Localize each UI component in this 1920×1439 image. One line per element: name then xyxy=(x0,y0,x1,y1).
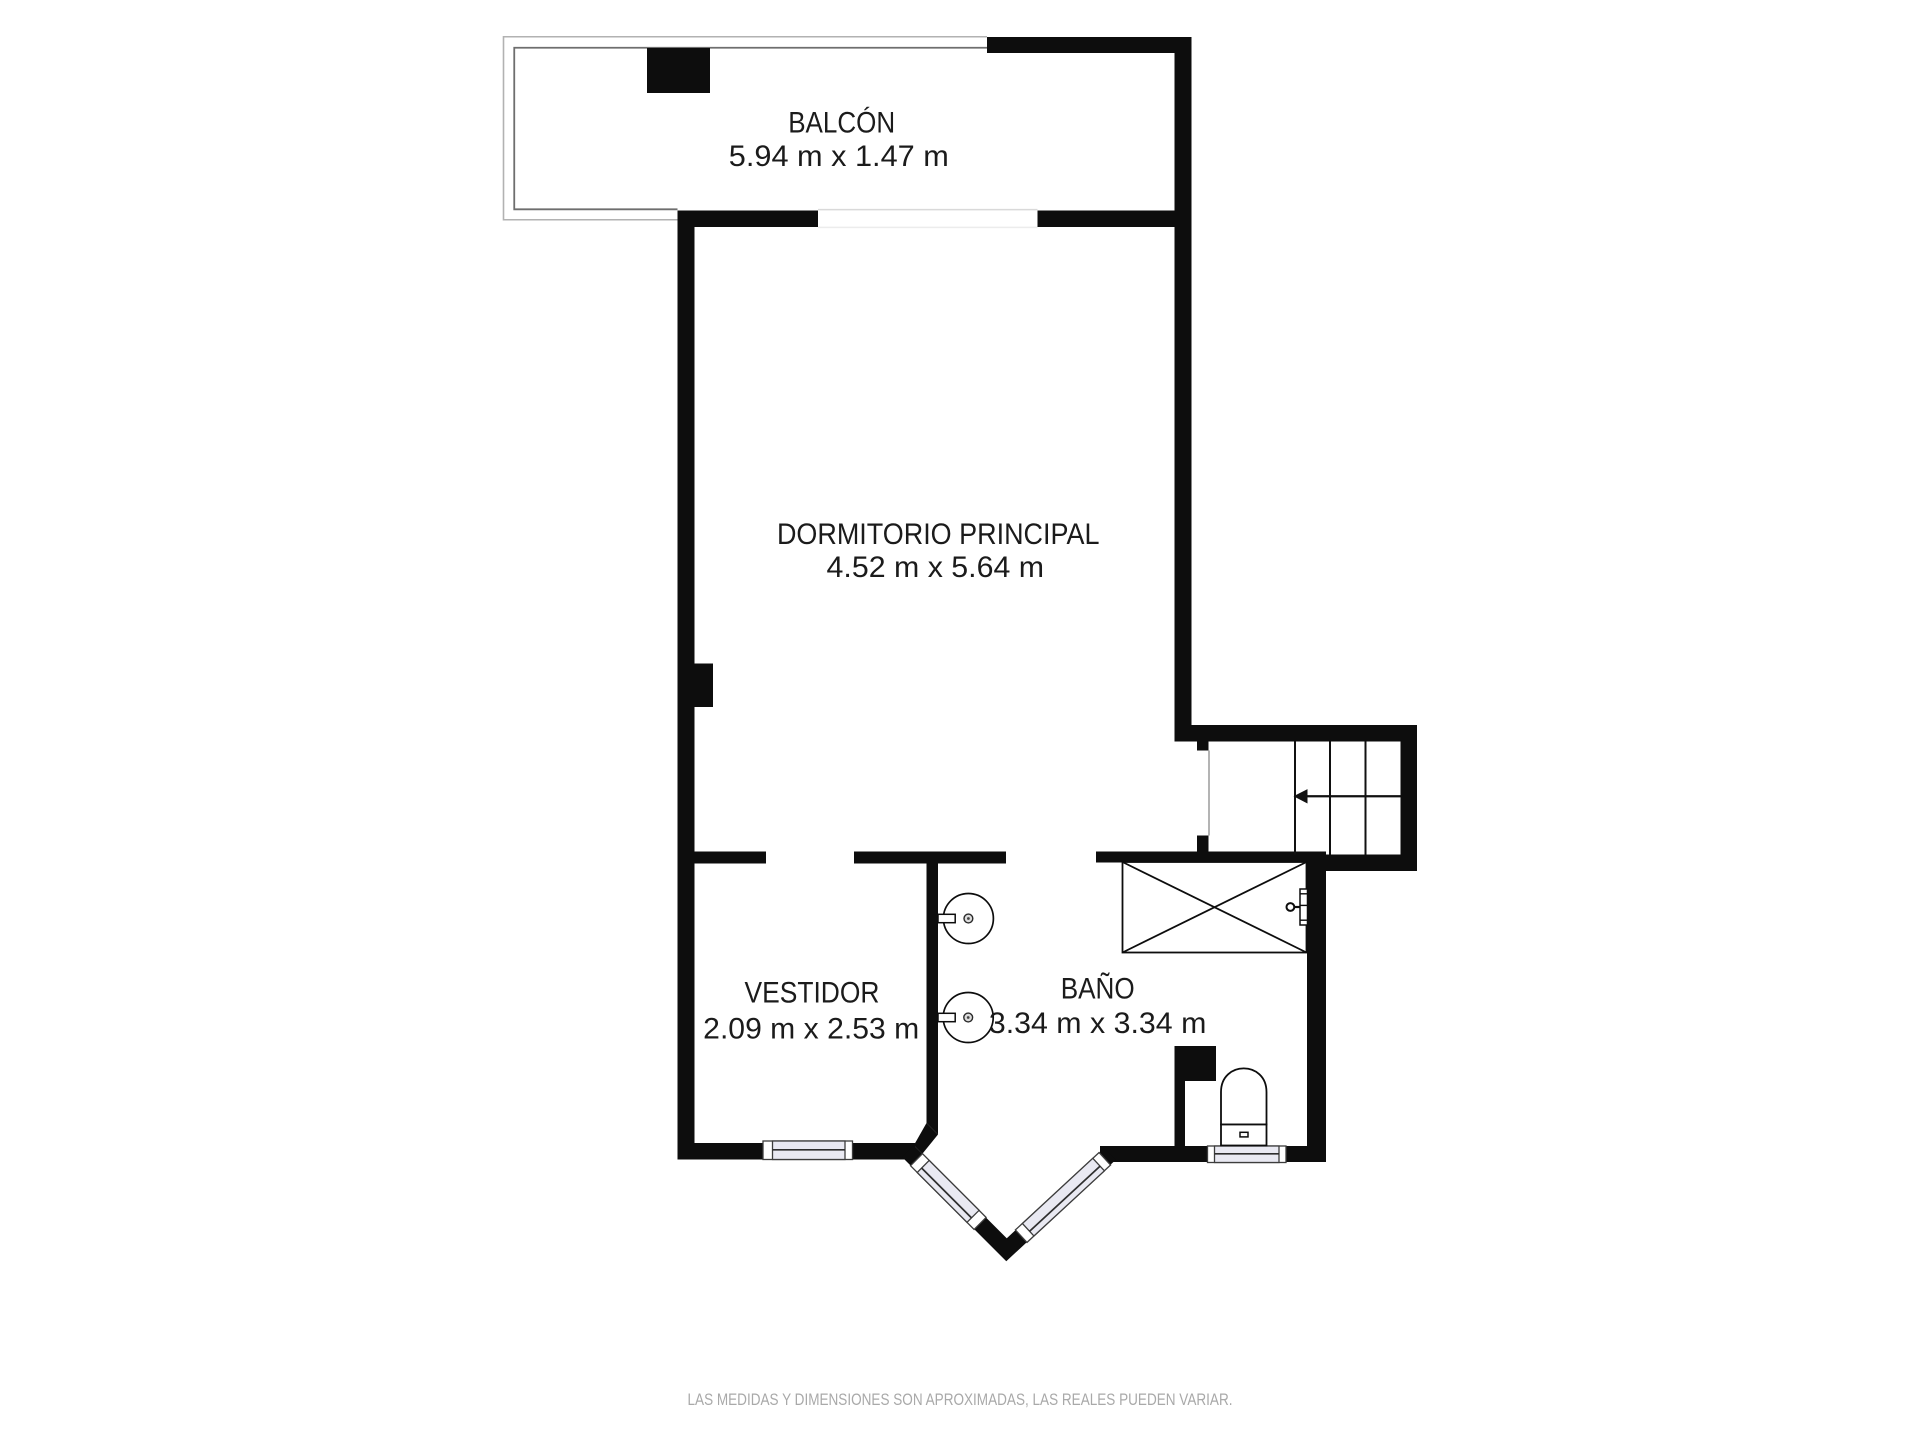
svg-text:5.94 m x 1.47 m: 5.94 m x 1.47 m xyxy=(729,140,949,173)
svg-text:BALCÓN: BALCÓN xyxy=(788,107,895,140)
svg-text:VESTIDOR: VESTIDOR xyxy=(745,976,880,1009)
svg-text:DORMITORIO PRINCIPAL: DORMITORIO PRINCIPAL xyxy=(777,518,1100,551)
svg-text:LAS MEDIDAS Y DIMENSIONES SON: LAS MEDIDAS Y DIMENSIONES SON APROXIMADA… xyxy=(688,1391,1233,1409)
svg-text:2.09 m x 2.53 m: 2.09 m x 2.53 m xyxy=(703,1013,919,1046)
svg-text:BAÑO: BAÑO xyxy=(1061,971,1135,1005)
svg-text:4.52 m x 5.64 m: 4.52 m x 5.64 m xyxy=(827,551,1045,584)
svg-text:3.34 m x 3.34 m: 3.34 m x 3.34 m xyxy=(989,1007,1207,1040)
